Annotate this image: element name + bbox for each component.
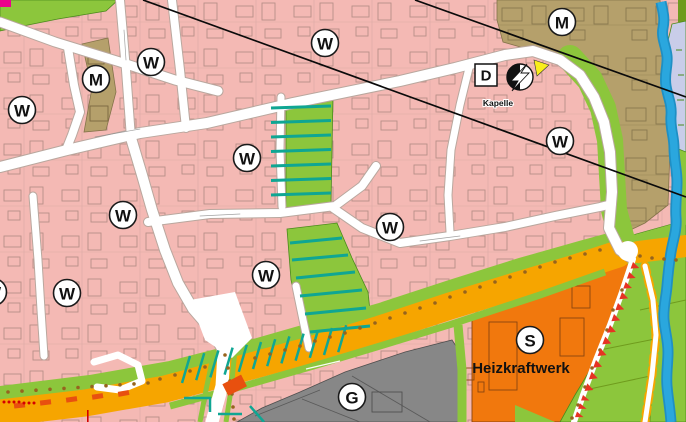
zone-marker-W: W bbox=[54, 280, 81, 307]
svg-text:W: W bbox=[382, 219, 399, 238]
svg-text:M: M bbox=[555, 14, 569, 33]
red-boundary-tick bbox=[87, 410, 89, 422]
svg-text:W: W bbox=[59, 285, 76, 304]
svg-text:W: W bbox=[143, 54, 160, 73]
zone-marker-M: M bbox=[549, 9, 576, 36]
zone-marker-W: W bbox=[9, 97, 36, 124]
zone-marker-W: W bbox=[234, 145, 261, 172]
svg-text:G: G bbox=[345, 389, 358, 408]
svg-text:M: M bbox=[89, 71, 103, 90]
monument-letter: D bbox=[481, 68, 492, 85]
monument-marker: D bbox=[475, 64, 497, 86]
zone-marker-G: G bbox=[339, 384, 366, 411]
zone-magenta-sliver bbox=[0, 0, 11, 7]
zone-marker-W: W bbox=[253, 262, 280, 289]
map-viewport: D WMWWMWWWWWWWSG Kapelle Heizkraftwerk bbox=[0, 0, 686, 422]
zone-marker-W: W bbox=[312, 30, 339, 57]
electricity-symbol bbox=[507, 64, 533, 91]
svg-text:W: W bbox=[14, 102, 31, 121]
svg-text:W: W bbox=[239, 150, 256, 169]
main-road-band-east bbox=[638, 246, 686, 252]
chapel-label: Kapelle bbox=[483, 98, 514, 108]
zone-marker-W: W bbox=[138, 49, 165, 76]
svg-text:W: W bbox=[115, 207, 132, 226]
svg-text:S: S bbox=[524, 332, 535, 351]
zone-marker-W: W bbox=[110, 202, 137, 229]
zone-marker-M: M bbox=[83, 66, 110, 93]
svg-text:W: W bbox=[552, 133, 569, 152]
green-strip-west-of-plant bbox=[458, 325, 462, 422]
zone-green-top-corner bbox=[678, 0, 686, 22]
zoning-map-canvas[interactable]: D WMWWMWWWWWWWSG Kapelle Heizkraftwerk bbox=[0, 0, 686, 422]
svg-text:W: W bbox=[317, 35, 334, 54]
zone-marker-S: S bbox=[517, 327, 544, 354]
zone-marker-W: W bbox=[547, 128, 574, 155]
svg-text:W: W bbox=[258, 267, 275, 286]
power-plant-label: Heizkraftwerk bbox=[472, 360, 570, 377]
zone-marker-W: W bbox=[377, 214, 404, 241]
